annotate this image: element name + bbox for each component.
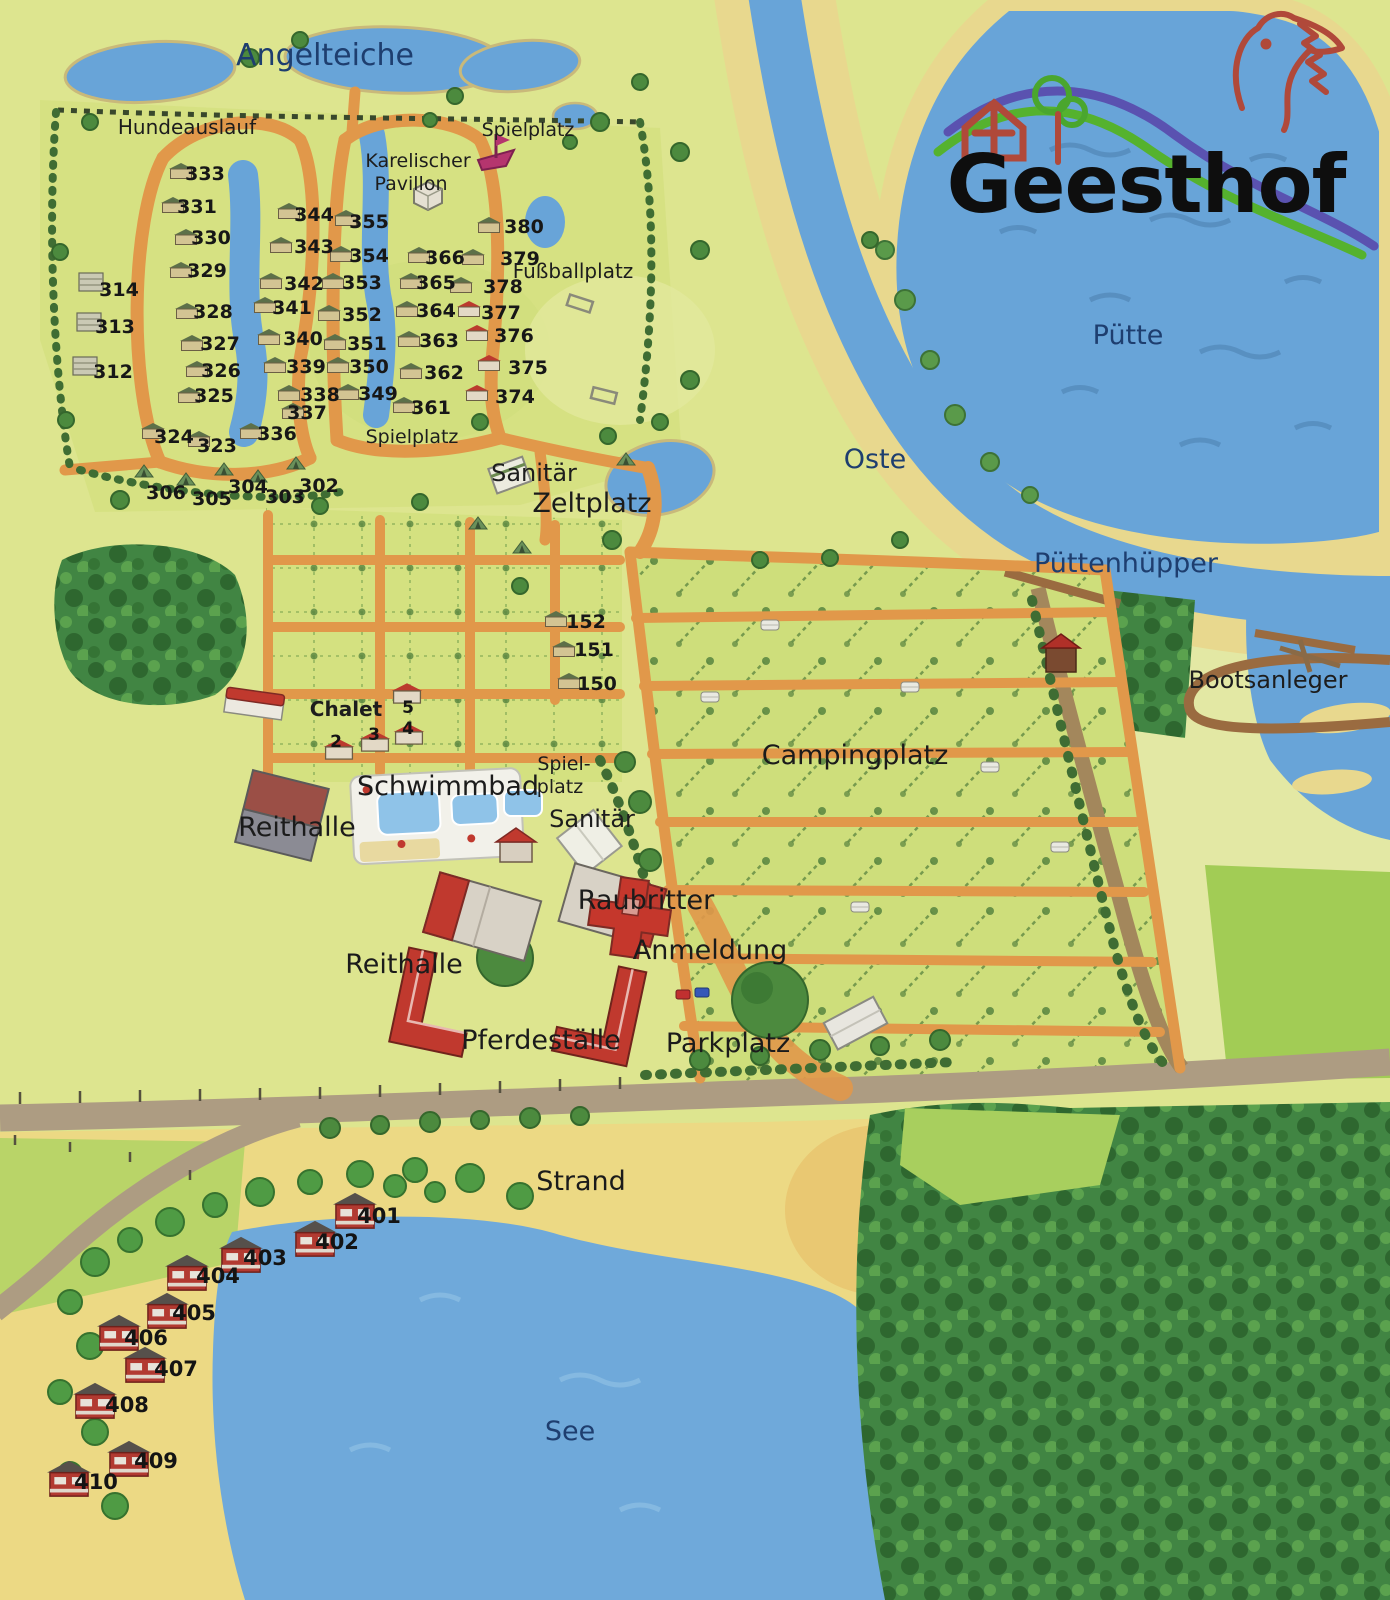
site-number: 405 (172, 1301, 216, 1325)
site-number: 305 (192, 488, 232, 510)
caravan-icon (851, 902, 869, 912)
site-number: 333 (185, 163, 225, 185)
site-number: 408 (105, 1393, 149, 1417)
site-number: 323 (197, 435, 237, 457)
label-parkplatz: Parkplatz (666, 1028, 790, 1059)
site-number: 324 (154, 426, 194, 448)
site-number: 366 (425, 247, 465, 269)
label-raubritter: Raubritter (578, 885, 715, 916)
east-field-green (1205, 865, 1390, 1080)
chalet-number: 4 (402, 719, 414, 739)
chalet-number: 2 (330, 732, 342, 752)
site-number: 404 (196, 1264, 240, 1288)
site-number: 326 (201, 360, 241, 382)
map-canvas: 333 331 330 329 328 327 326 325 324 323 … (0, 0, 1390, 1600)
label-hundeauslauf: Hundeauslauf (118, 115, 257, 139)
site-number: 314 (99, 279, 139, 301)
site-number: 302 (299, 475, 339, 497)
site-number: 407 (154, 1357, 198, 1381)
site-number: 380 (504, 216, 544, 238)
brand-name: Geesthof (947, 138, 1348, 231)
site-number: 312 (93, 361, 133, 383)
site-number: 330 (191, 227, 231, 249)
campsite-map: 333 331 330 329 328 327 326 325 324 323 … (0, 0, 1390, 1600)
label-pavillon: Pavillon (375, 173, 448, 195)
site-number: 341 (272, 297, 312, 319)
site-number: 377 (481, 302, 521, 324)
site-number: 365 (416, 272, 456, 294)
site-number: 336 (257, 423, 297, 445)
site-number: 304 (228, 476, 268, 498)
site-number: 401 (357, 1204, 401, 1228)
caravan-icon (761, 620, 779, 630)
caravan-icon (1051, 842, 1069, 852)
label-chalet: Chalet (310, 697, 383, 721)
label-karelischer: Karelischer (365, 150, 470, 172)
chalet-number: 5 (402, 698, 414, 718)
label-sanitaer-sued: Sanitär (549, 805, 635, 833)
site-number: 361 (411, 397, 451, 419)
site-number: 376 (494, 325, 534, 347)
site-number: 327 (200, 333, 240, 355)
label-see: See (545, 1416, 595, 1447)
site-number: 350 (349, 356, 389, 378)
forest-west (54, 544, 246, 705)
site-number: 339 (286, 356, 326, 378)
site-number: 328 (193, 301, 233, 323)
site-number: 152 (566, 611, 606, 633)
site-number: 351 (347, 333, 387, 355)
site-number: 349 (358, 383, 398, 405)
label-strand: Strand (536, 1166, 626, 1197)
site-number: 325 (194, 385, 234, 407)
label-angelteiche: Angelteiche (236, 38, 414, 73)
label-campingplatz: Campingplatz (762, 740, 949, 771)
site-number: 374 (495, 386, 535, 408)
site-number: 151 (574, 639, 614, 661)
fussballplatz-field (525, 275, 715, 425)
site-number: 354 (349, 245, 389, 267)
site-number: 343 (294, 236, 334, 258)
label-puettenhuepper: Püttenhüpper (1034, 548, 1219, 579)
site-number: 355 (349, 211, 389, 233)
site-number: 375 (508, 357, 548, 379)
label-schwimmbad: Schwimmbad (357, 771, 539, 802)
site-number: 344 (294, 204, 334, 226)
site-number: 352 (342, 304, 382, 326)
label-spiel: Spiel- (537, 753, 590, 775)
site-number: 410 (74, 1470, 118, 1494)
parkplatz-tree (732, 962, 808, 1038)
site-number: 409 (134, 1449, 178, 1473)
site-number: 313 (95, 316, 135, 338)
site-number: 329 (187, 260, 227, 282)
site-number: 364 (416, 300, 456, 322)
label-reithalle-nord: Reithalle (238, 812, 356, 843)
site-number: 342 (284, 273, 324, 295)
caravan-icon (981, 762, 999, 772)
label-pferdestaelle: Pferdeställe (461, 1025, 621, 1056)
site-number: 353 (342, 272, 382, 294)
label-reithalle-sued: Reithalle (345, 949, 463, 980)
label-spielplatz-top: Spielplatz (482, 119, 575, 141)
site-number: 306 (146, 482, 186, 504)
site-number: 403 (243, 1246, 287, 1270)
site-number: 406 (124, 1326, 168, 1350)
label-platz: platz (537, 776, 583, 798)
site-number: 331 (177, 196, 217, 218)
bungalow-pond-west (243, 175, 252, 432)
label-oste: Oste (844, 444, 907, 475)
site-number: 150 (577, 673, 617, 695)
site-number: 363 (419, 330, 459, 352)
chalet-number: 3 (368, 725, 380, 745)
site-number: 337 (287, 402, 327, 424)
label-puette: Pütte (1093, 320, 1164, 351)
caravan-icon (901, 682, 919, 692)
site-number: 362 (424, 362, 464, 384)
label-bootsanleger: Bootsanleger (1189, 666, 1348, 694)
label-fussballplatz: Fußballplatz (513, 259, 634, 283)
site-number: 402 (315, 1230, 359, 1254)
label-zeltplatz: Zeltplatz (532, 488, 651, 519)
label-spielplatz-mid: Spielplatz (366, 426, 459, 448)
caravan-icon (701, 692, 719, 702)
label-sanitaer-nord: Sanitär (491, 459, 577, 487)
site-number: 340 (283, 328, 323, 350)
label-anmeldung: Anmeldung (633, 935, 788, 966)
